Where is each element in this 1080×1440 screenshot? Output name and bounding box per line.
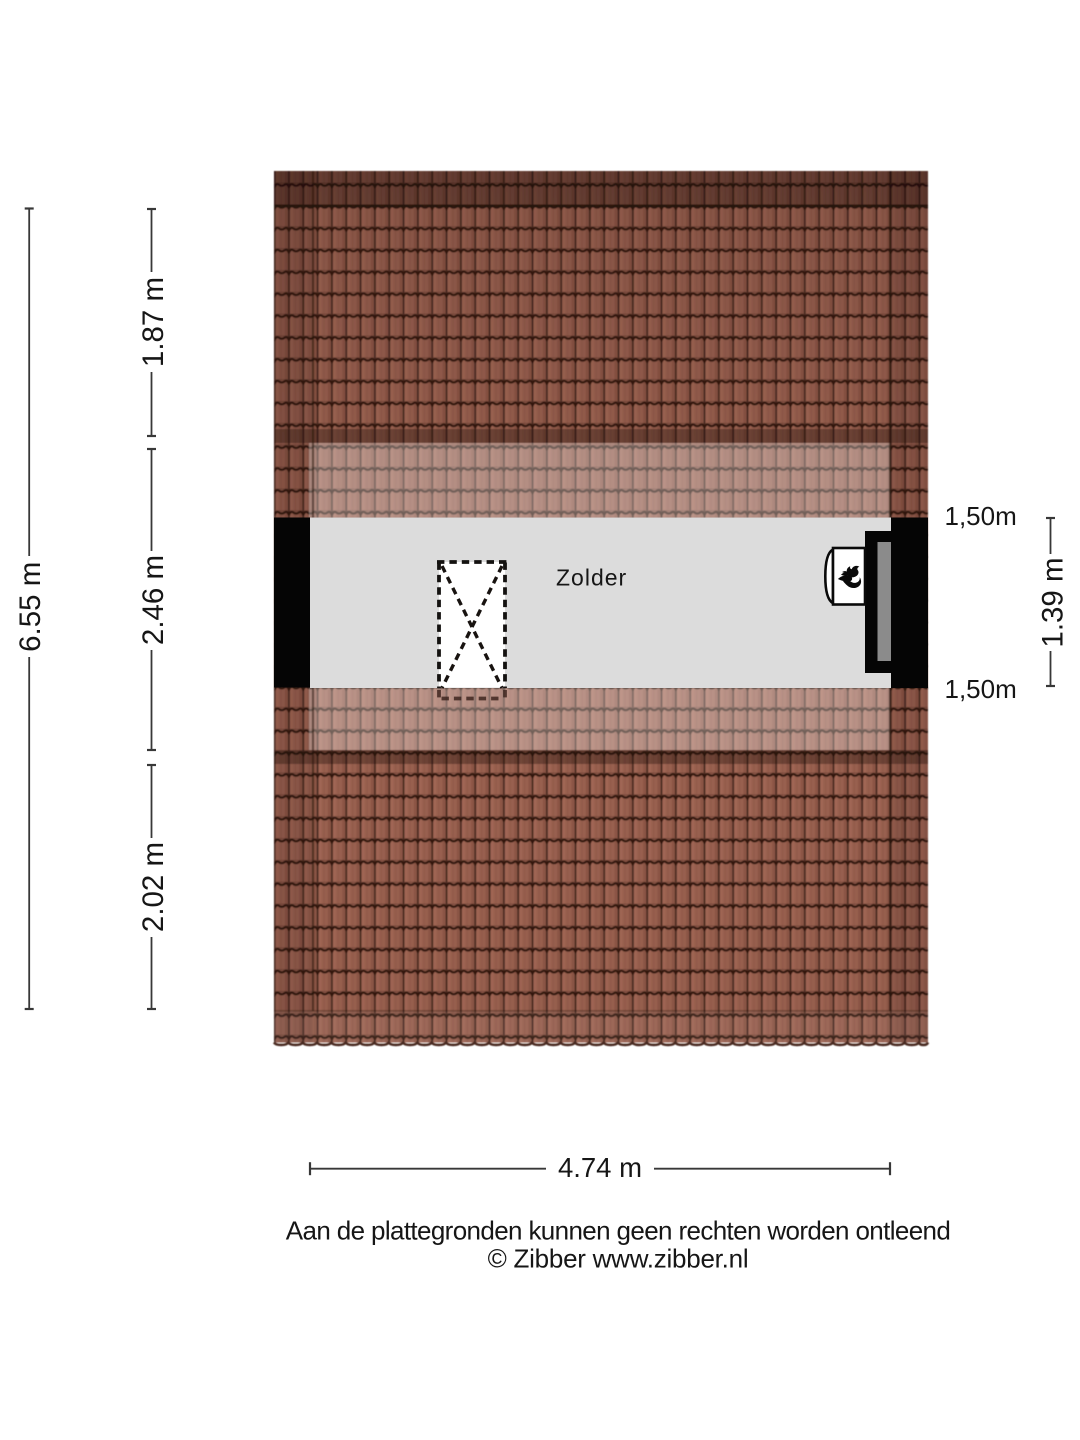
svg-text:6.55 m: 6.55 m — [14, 562, 47, 652]
svg-text:1,50m: 1,50m — [945, 501, 1017, 531]
svg-text:4.74 m: 4.74 m — [558, 1152, 642, 1183]
svg-text:Zolder: Zolder — [556, 565, 627, 591]
svg-text:2.46 m: 2.46 m — [137, 555, 170, 645]
svg-text:© Zibber www.zibber.nl: © Zibber www.zibber.nl — [488, 1244, 749, 1274]
svg-text:2.02 m: 2.02 m — [137, 842, 170, 932]
svg-text:1.87 m: 1.87 m — [137, 277, 170, 367]
svg-text:Aan de plattegronden kunnen ge: Aan de plattegronden kunnen geen rechten… — [286, 1216, 950, 1246]
svg-text:1,50m: 1,50m — [945, 674, 1017, 704]
svg-text:1.39 m: 1.39 m — [1037, 557, 1070, 647]
